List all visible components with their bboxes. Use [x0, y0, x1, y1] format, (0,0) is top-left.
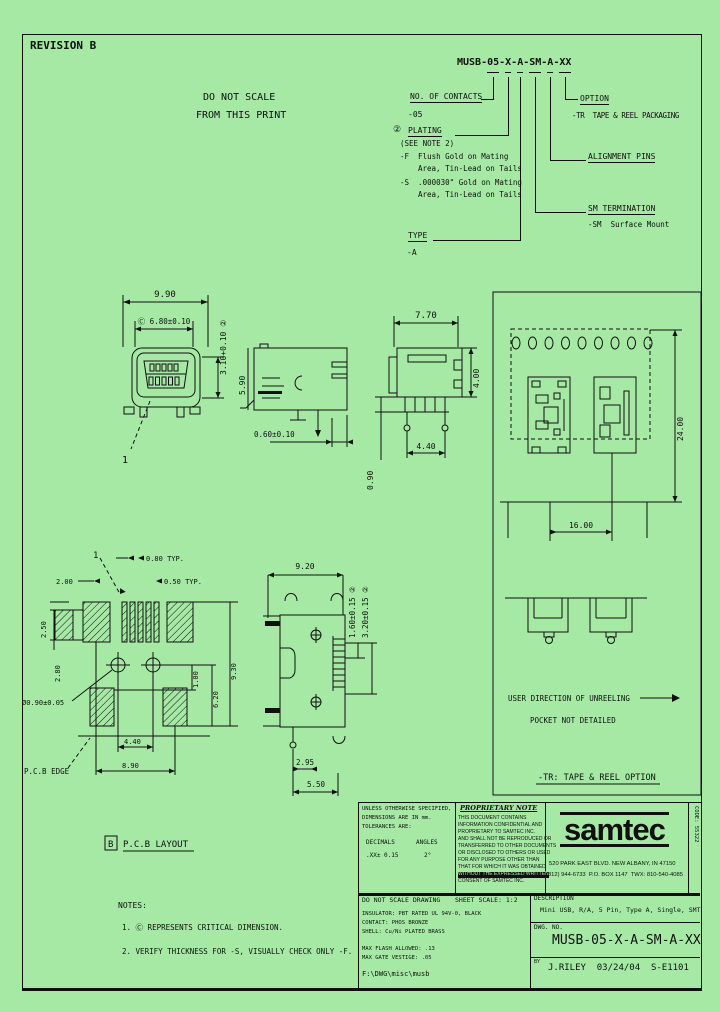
leader-plating-h — [455, 135, 509, 136]
flash-note-1: MAX FLASH ALLOWED: .13 — [362, 946, 435, 952]
dim-pcb-offset: 2.00 — [56, 578, 73, 586]
material-insulator: INSULATOR: PBT RATED UL 94V-0, BLACK — [362, 911, 481, 917]
cage-code: CODE: 55322 — [693, 806, 699, 842]
end-view-drawing: 7.70 4.00 4.40 0.90 — [355, 300, 500, 500]
option-value: -TR TAPE & REEL PACKAGING — [572, 112, 679, 121]
tolerance-line1: UNLESS OTHERWISE SPECIFIED, — [362, 806, 451, 812]
contacts-label: NO. OF CONTACTS — [410, 92, 482, 103]
plating-option-s: -S .000030" Gold on Mating — [400, 179, 522, 188]
tape-side-pocket-2 — [590, 598, 632, 644]
plating-option-f2: Area, Tin-Lead on Tails — [418, 165, 522, 174]
pn-underline-contacts — [487, 72, 499, 73]
leader-option — [565, 77, 566, 99]
dim-pcb-pad-width: 0.50 TYP. — [164, 578, 202, 586]
leader-contacts — [493, 77, 494, 99]
proprietary-line-4: TRANSFERRED TO OTHER DOCUMENTS — [458, 844, 556, 850]
drawing-sheet: REVISION B DO NOT SCALE FROM THIS PRINT … — [0, 0, 720, 1012]
angles-value: 2° — [424, 853, 431, 860]
pn-underline-alignment — [547, 72, 553, 73]
revision-label: REVISION B — [30, 40, 96, 53]
dim-front-opening: Ⓒ 6.80±0.10 — [138, 317, 191, 326]
leader-plating — [508, 77, 509, 135]
tb-divider-dwg — [530, 957, 700, 958]
flash-note-2: MAX GATE VESTIGE: .05 — [362, 955, 432, 961]
decimals-value: .XX± 0.15 — [366, 853, 399, 860]
contacts-value: -05 — [408, 110, 422, 119]
dim-pcb-hole: Ø0.90±0.05 — [22, 699, 64, 707]
pn-underline-type — [517, 72, 523, 73]
alignment-label: ALIGNMENT PINS — [588, 152, 655, 163]
leader-termination-h — [535, 212, 586, 213]
dim-pcb-r3: 9.30 — [230, 663, 238, 680]
dim-bottom-tab: 1.60±0.15 ② — [348, 586, 357, 638]
proprietary-line-7: THAT FOR WHICH IT WAS OBTAINED — [458, 865, 546, 871]
pin1-label-front: 1 — [122, 455, 128, 466]
tape-reel-caption: -TR: TAPE & REEL OPTION — [538, 773, 656, 783]
proprietary-line-1: INFORMATION CONFIDENTIAL AND — [458, 823, 542, 829]
dim-end-standoff: 0.90 — [366, 471, 375, 490]
part-number: MUSB-05-X-A-SM-A-XX — [457, 57, 571, 69]
proprietary-title: PROPRIETARY NOTE — [460, 805, 537, 812]
tb-divider-1 — [455, 802, 456, 894]
plating-see-note: (SEE NOTE 2) — [400, 140, 454, 149]
address-line1: 520 PARK EAST BLVD. NEW ALBANY, IN 47150 — [549, 861, 676, 868]
dim-end-body: 4.00 — [472, 369, 481, 388]
pin1-label-pcb: 1 — [93, 551, 98, 561]
leader-type-h — [433, 240, 521, 241]
plating-option-f: -F Flush Gold on Mating — [400, 153, 508, 162]
dim-front-width: 9.90 — [154, 290, 176, 300]
dim-bottom-pitch: 5.50 — [307, 780, 326, 789]
tb-divider-3 — [688, 802, 689, 894]
notes-title: NOTES: — [118, 901, 147, 910]
pcb-view-label: P.C.B LAYOUT — [123, 840, 189, 850]
no-scale-label: DO NOT SCALE DRAWING — [362, 897, 440, 904]
tb-divider-desc — [530, 922, 700, 923]
leader-contacts-h — [481, 99, 494, 100]
pocket-connector-1 — [528, 377, 570, 453]
dim-bottom-pin: 2.95 — [296, 758, 314, 767]
pcb-edge-label: P.C.B EDGE — [24, 767, 70, 776]
leader-alignment-h — [550, 160, 586, 161]
leader-termination — [535, 77, 536, 212]
by-label: BY — [534, 960, 540, 966]
dim-tape-height: 24.00 — [676, 417, 685, 441]
plating-flag-icon: ② — [393, 125, 401, 135]
note-1: 1. Ⓒ REPRESENTS CRITICAL DIMENSION. — [122, 924, 283, 933]
dim-end-width: 7.70 — [415, 311, 437, 321]
dim-bottom-slot: 3.20±0.15 ② — [361, 586, 370, 638]
proprietary-line-5: OR DISCLOSED TO OTHERS OR USED — [458, 851, 550, 857]
dim-pcb-span: 4.40 — [124, 738, 141, 746]
tolerance-line3: TOLERANCES ARE: — [362, 824, 412, 830]
pocket-note-label: POCKET NOT DETAILED — [530, 716, 616, 725]
dim-tape-pitch: 16.00 — [569, 521, 593, 530]
file-path: F:\DWG\misc\musb — [362, 970, 429, 978]
samtec-logo: samtec — [560, 812, 669, 847]
plating-label: PLATING — [408, 126, 442, 137]
leader-alignment — [550, 77, 551, 160]
proprietary-line-8: WITHOUT THE EXPRESSED WRITTEN — [458, 872, 549, 878]
description-label: DESCRIPTION — [534, 896, 574, 903]
dim-side-tail: 0.60±0.10 — [254, 430, 295, 439]
material-shell: SHELL: Cu/Ni PLATED BRASS — [362, 929, 445, 935]
plating-option-s2: Area, Tin-Lead on Tails — [418, 191, 522, 200]
side-view-drawing: 5.90 0.60±0.10 — [240, 290, 370, 455]
dim-front-height: 3.10+0.10 ② — [219, 320, 228, 375]
option-label: OPTION — [580, 94, 609, 105]
proprietary-line-0: THIS DOCUMENT CONTAINS — [458, 816, 526, 822]
termination-label: SM TERMINATION — [588, 204, 655, 215]
dim-pcb-pitch: 0.80 TYP. — [146, 555, 184, 563]
termination-value: -SM Surface Mount — [588, 221, 669, 230]
dim-side-height: 5.90 — [238, 376, 247, 395]
do-not-scale-line2: FROM THIS PRINT — [196, 110, 286, 122]
note-2: 2. VERIFY THICKNESS FOR -S, VISUALLY CHE… — [122, 948, 352, 957]
pn-underline-termination — [529, 72, 541, 73]
tape-side-pocket-1 — [528, 598, 568, 644]
do-not-scale-line1: DO NOT SCALE — [203, 92, 275, 104]
dwg-no-value: MUSB-05-X-A-SM-A-XX — [552, 934, 701, 949]
pcb-view-flag: B — [108, 840, 113, 850]
leader-option-h — [565, 99, 578, 100]
tolerance-line2: DIMENSIONS ARE IN mm. — [362, 815, 432, 821]
tape-reel-panel: 24.00 16.00 USER DIRECTION OF UNREELING … — [492, 291, 702, 796]
dim-pcb-pad-len: 2.50 — [40, 621, 48, 638]
pocket-connector-2 — [594, 377, 636, 453]
sheet-scale: SHEET SCALE: 1:2 — [455, 897, 518, 904]
dim-end-pins: 4.40 — [416, 442, 435, 451]
proprietary-line-2: PROPRIETARY TO SAMTEC INC. — [458, 830, 535, 836]
tb-divider-4 — [530, 895, 531, 988]
dwg-no-label: DWG. NO. — [534, 925, 563, 932]
dim-pcb-r1: 1.00 — [192, 671, 200, 688]
pn-underline-option — [559, 72, 571, 73]
dim-pcb-total: 8.90 — [122, 762, 139, 770]
pn-underline-plating — [505, 72, 511, 73]
proprietary-line-9: CONSENT OF SAMTEC INC. — [458, 879, 524, 885]
dim-bottom-width: 9.20 — [295, 562, 314, 571]
dim-pcb-r2: 6.20 — [212, 691, 220, 708]
leader-type — [520, 77, 521, 240]
bottom-view-drawing: 9.20 1.60±0.15 ② 3.20±0.15 ② 2.95 5.50 — [255, 528, 400, 818]
address-line2: (812) 944-6733 P.O. BOX 1147 TWX: 810-54… — [546, 872, 683, 879]
decimals-label: DECIMALS — [366, 840, 395, 847]
type-value: -A — [407, 248, 417, 257]
proprietary-line-6: FOR ANY PURPOSE OTHER THAN — [458, 858, 540, 864]
description-value: Mini USB, R/A, 5 Pin, Type A, Single, SM… — [540, 907, 700, 914]
by-value: J.RILEY 03/24/04 S-E1101 — [548, 963, 689, 973]
material-contact: CONTACT: PHOS BRONZE — [362, 920, 428, 926]
unreel-direction-label: USER DIRECTION OF UNREELING — [508, 694, 630, 703]
proprietary-line-3: AND SHALL NOT BE REPRODUCED OR — [458, 837, 551, 843]
type-label: TYPE — [408, 231, 427, 242]
angles-label: ANGLES — [416, 840, 438, 847]
dim-pcb-side: 2.80 — [54, 665, 62, 682]
